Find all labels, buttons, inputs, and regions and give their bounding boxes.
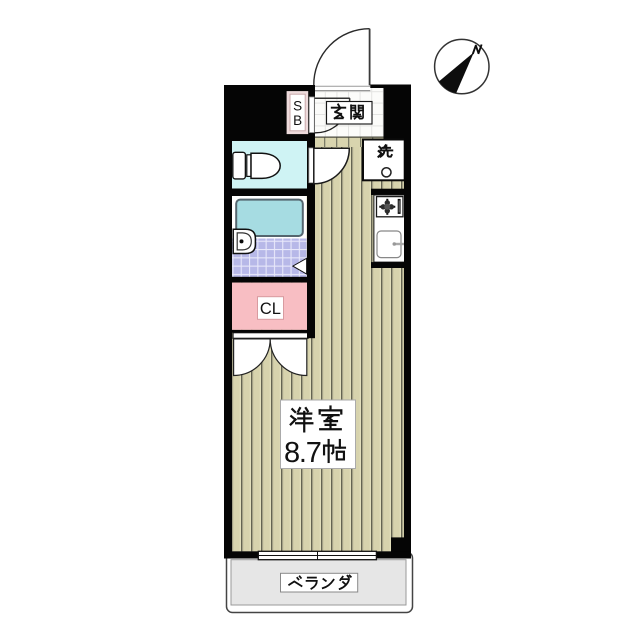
svg-text:CL: CL <box>260 300 281 318</box>
svg-text:8.7: 8.7 <box>284 437 321 469</box>
svg-text:S: S <box>293 99 302 114</box>
svg-text:B: B <box>293 113 302 128</box>
